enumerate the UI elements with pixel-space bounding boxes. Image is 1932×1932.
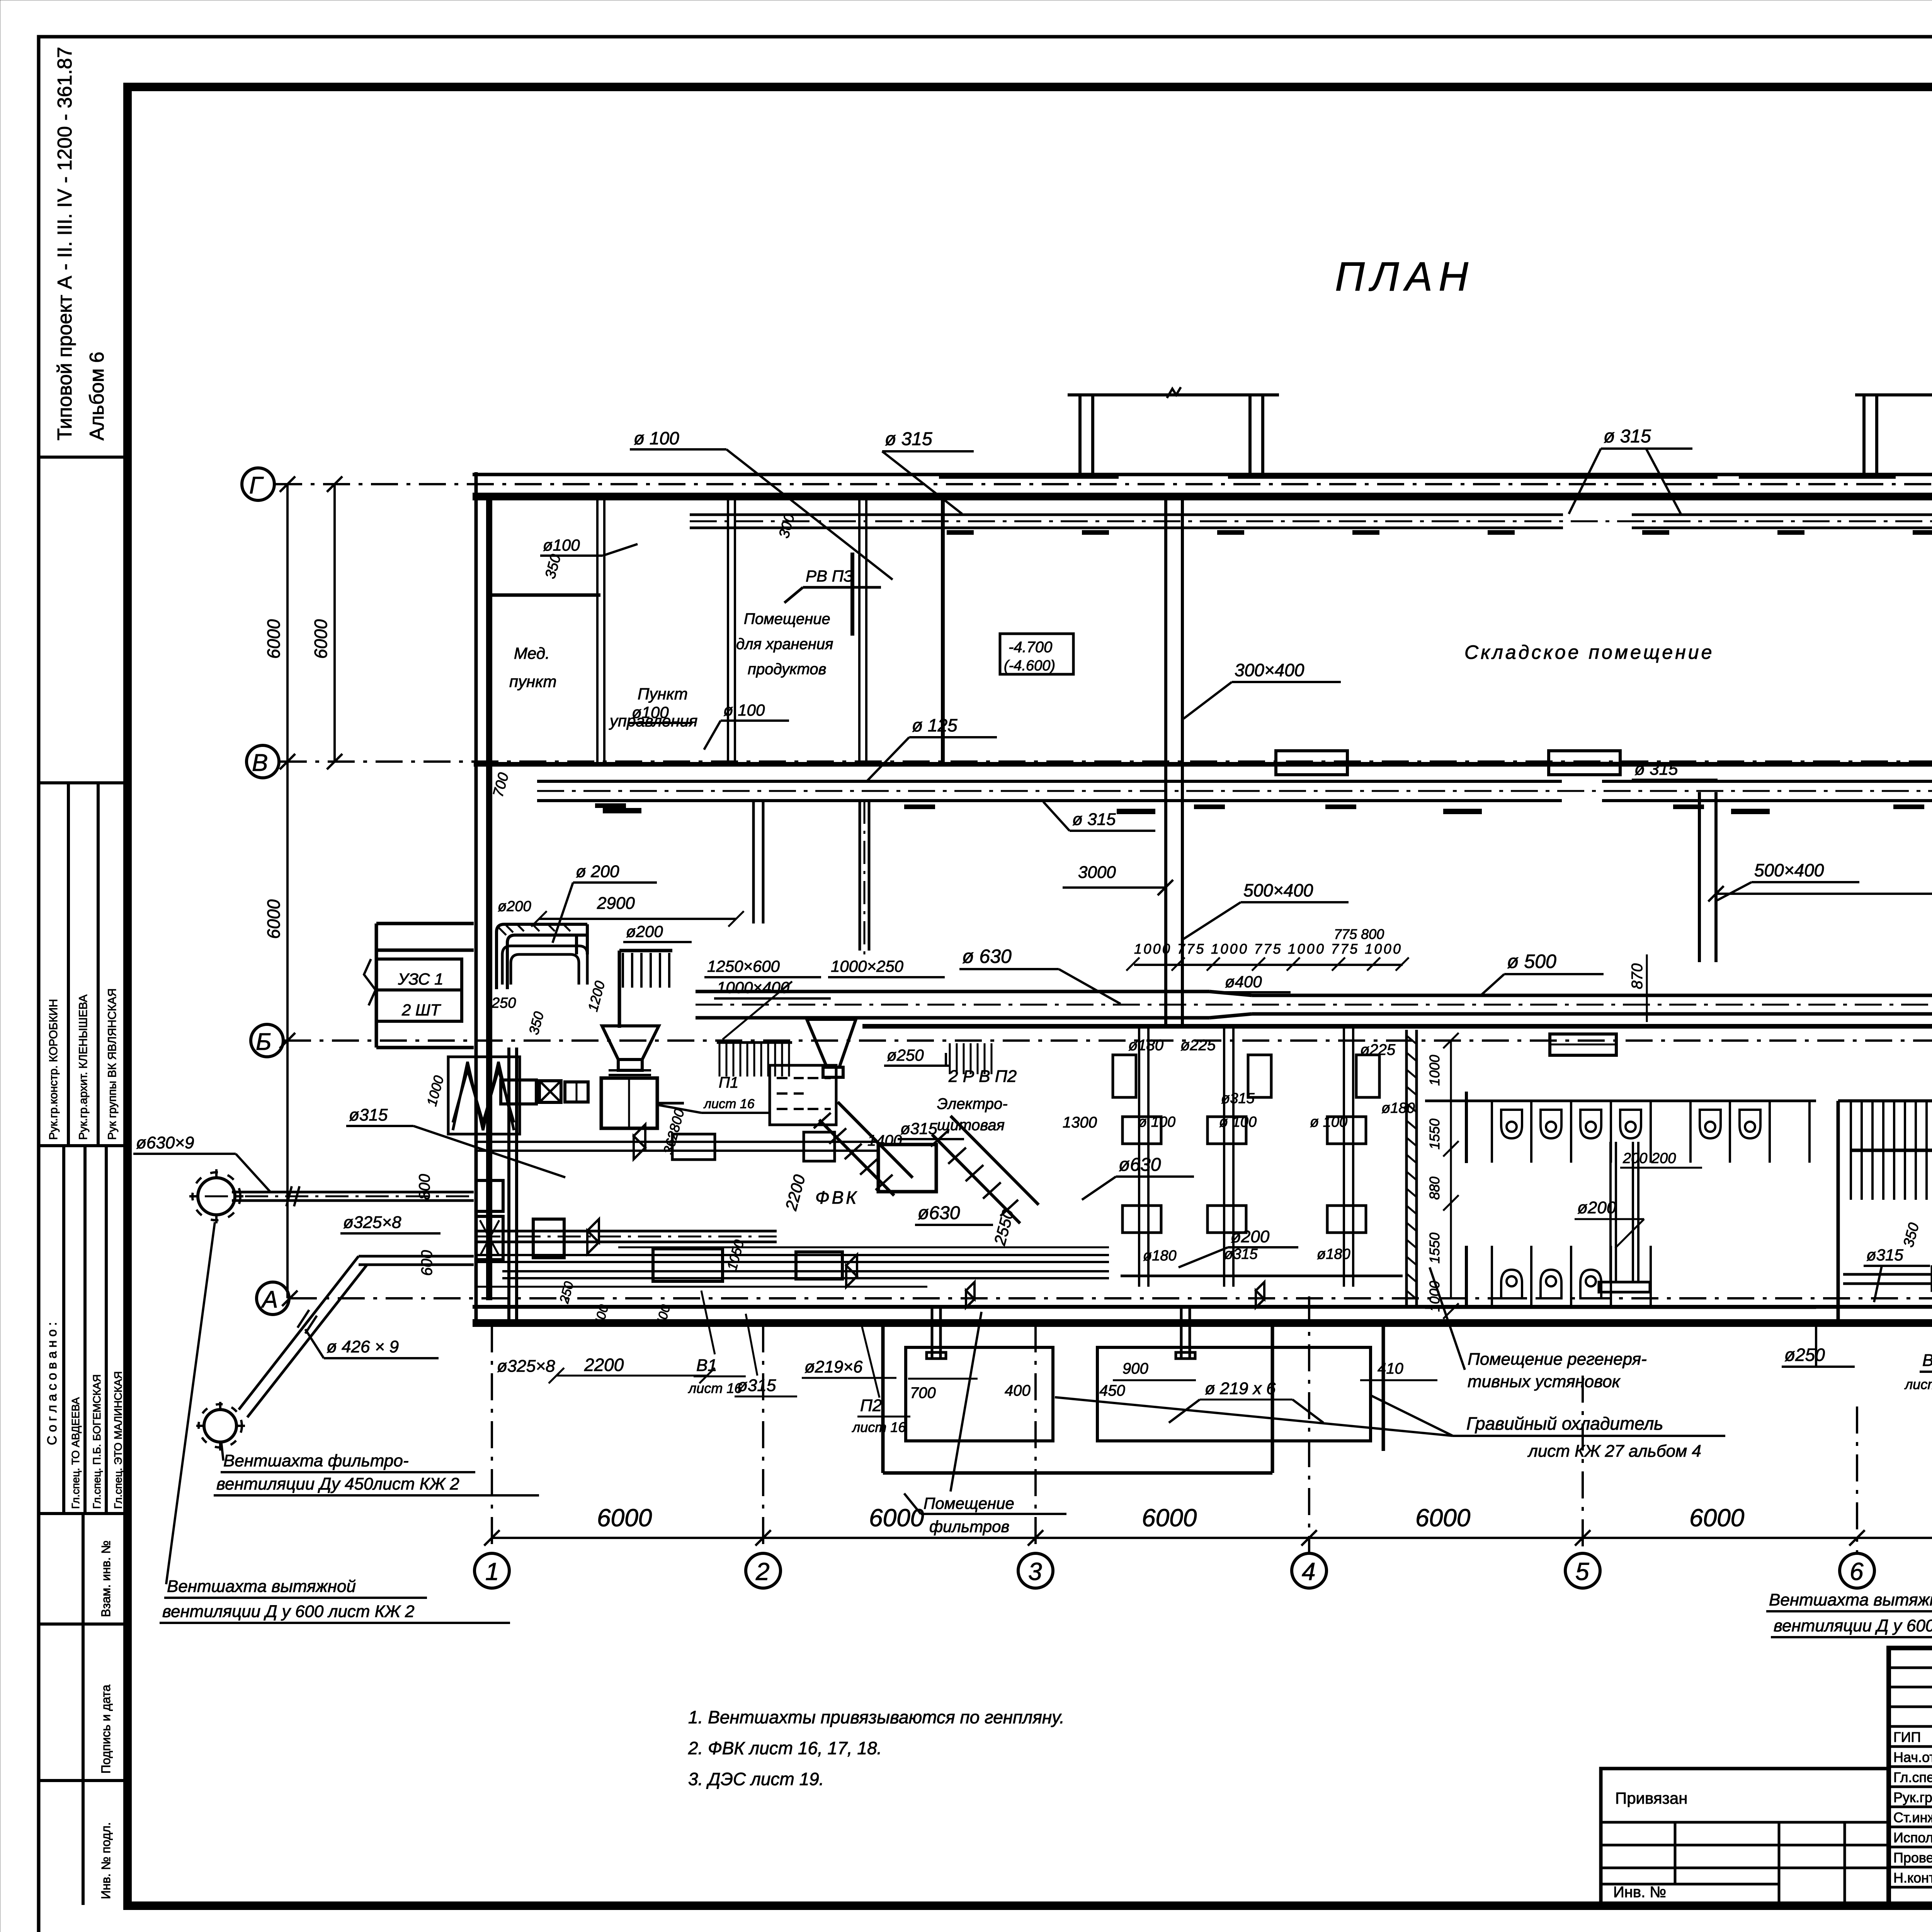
svg-text:775 800: 775 800	[1334, 926, 1384, 942]
svg-text:6000: 6000	[264, 899, 284, 939]
svg-text:Привязан: Привязан	[1615, 1789, 1687, 1807]
svg-text:350: 350	[1900, 1221, 1922, 1249]
svg-text:Вентшахта вытяжной: Вентшахта вытяжной	[167, 1577, 356, 1596]
svg-text:ø400: ø400	[1225, 973, 1262, 991]
svg-text:ø180: ø180	[1128, 1037, 1163, 1054]
svg-text:тивных устяновок: тивных устяновок	[1468, 1372, 1621, 1391]
svg-text:500×400: 500×400	[1243, 880, 1313, 900]
svg-text:Г: Г	[249, 472, 264, 499]
svg-text:Провер.: Провер.	[1893, 1850, 1932, 1866]
svg-text:ФВК: ФВК	[815, 1187, 859, 1207]
svg-text:лист 16: лист 16	[688, 1380, 742, 1396]
svg-text:362800: 362800	[660, 1107, 687, 1156]
svg-text:350: 350	[526, 1010, 547, 1036]
svg-text:ø180: ø180	[1381, 1100, 1415, 1116]
svg-text:ø 315: ø 315	[885, 429, 932, 449]
svg-text:6000: 6000	[1689, 1504, 1745, 1532]
svg-text:1300: 1300	[1063, 1114, 1097, 1131]
svg-text:лист 16: лист 16	[852, 1419, 906, 1435]
svg-text:ø100: ø100	[632, 703, 669, 721]
svg-text:ø325×8: ø325×8	[343, 1213, 401, 1232]
svg-text:2200: 2200	[782, 1172, 809, 1213]
svg-text:В: В	[252, 750, 268, 776]
svg-text:лист 19: лист 19	[1904, 1376, 1932, 1392]
svg-text:250: 250	[557, 1280, 577, 1305]
svg-text:ø 426 × 9: ø 426 × 9	[327, 1337, 399, 1356]
svg-text:Инв. № подл.: Инв. № подл.	[99, 1822, 113, 1899]
svg-text:2200: 2200	[584, 1355, 624, 1375]
svg-text:Рук.гр.констр. КОРОБКИН: Рук.гр.констр. КОРОБКИН	[47, 999, 60, 1140]
svg-text:П1: П1	[719, 1074, 738, 1091]
svg-text:Нач.отд.: Нач.отд.	[1893, 1749, 1932, 1765]
svg-text:Вентшахта вытяжной: Вентшахта вытяжной	[1769, 1590, 1932, 1609]
svg-text:ø200: ø200	[626, 922, 663, 940]
svg-text:1550: 1550	[1427, 1233, 1442, 1264]
svg-text:ø 315: ø 315	[1634, 760, 1678, 779]
svg-text:лист КЖ 27 альбом 4: лист КЖ 27 альбом 4	[1527, 1442, 1701, 1461]
svg-text:ø 219 x 6: ø 219 x 6	[1205, 1379, 1276, 1398]
svg-text:Гл.спец. ЭТО МАЛИНСКАЯ: Гл.спец. ЭТО МАЛИНСКАЯ	[112, 1371, 124, 1509]
svg-text:410: 410	[1378, 1360, 1403, 1377]
svg-text:300: 300	[776, 512, 798, 540]
svg-text:3000: 3000	[1078, 863, 1116, 882]
svg-text:Рук группы ВК ЯВЛЯНСКАЯ: Рук группы ВК ЯВЛЯНСКАЯ	[106, 988, 119, 1140]
svg-text:ø200: ø200	[498, 898, 531, 915]
svg-text:6000: 6000	[1142, 1504, 1197, 1532]
svg-text:Гл.спец. П.Б. БОГЕМСКАЯ: Гл.спец. П.Б. БОГЕМСКАЯ	[91, 1374, 103, 1509]
svg-text:2: 2	[755, 1558, 770, 1585]
svg-text:500×400: 500×400	[1754, 860, 1824, 880]
svg-text:П2: П2	[860, 1396, 882, 1415]
svg-text:Типовой проект А - II. III: Типовой проект А - II. III. IV - 1200 - …	[54, 47, 76, 440]
svg-text:Складское помещение: Складское помещение	[1464, 641, 1714, 663]
svg-text:ø315: ø315	[349, 1105, 388, 1124]
svg-text:Альбом 6: Альбом 6	[86, 352, 108, 440]
svg-text:ø630×9: ø630×9	[136, 1133, 194, 1152]
svg-text:Исполн.: Исполн.	[1893, 1830, 1932, 1845]
svg-text:Вентшахта фильтро-: Вентшахта фильтро-	[223, 1451, 408, 1470]
svg-text:ø200: ø200	[1231, 1227, 1270, 1246]
svg-text:ø315: ø315	[1866, 1246, 1903, 1264]
svg-text:вентиляции Д у 600 лист КЖ 2: вентиляции Д у 600 лист КЖ 2	[162, 1602, 415, 1621]
svg-text:ø 125: ø 125	[912, 715, 957, 735]
svg-text:6000: 6000	[597, 1504, 652, 1532]
svg-text:УЗС 1: УЗС 1	[398, 970, 444, 988]
svg-text:6000: 6000	[311, 619, 331, 659]
svg-text:ø180: ø180	[1317, 1246, 1350, 1262]
svg-text:С о г л а с о в а н о :: С о г л а с о в а н о :	[45, 1322, 60, 1445]
svg-text:Взам. инв. №: Взам. инв. №	[99, 1541, 113, 1617]
svg-text:Рук.гр.архит. КЛЕНЫШЕВА: Рук.гр.архит. КЛЕНЫШЕВА	[77, 995, 90, 1140]
svg-text:ø100: ø100	[543, 536, 580, 554]
svg-text:250: 250	[491, 995, 516, 1011]
svg-text:Н.контр.: Н.контр.	[1893, 1870, 1932, 1886]
svg-text:вентиляции Ду 450лист КЖ 2: вентиляции Ду 450лист КЖ 2	[216, 1475, 459, 1493]
svg-text:6000: 6000	[264, 619, 284, 659]
svg-text:ø225: ø225	[1180, 1037, 1216, 1054]
svg-text:Инв. №: Инв. №	[1613, 1884, 1666, 1901]
svg-text:ø 500: ø 500	[1507, 951, 1556, 972]
svg-text:-4.700: -4.700	[1009, 639, 1052, 656]
svg-text:ø200: ø200	[1577, 1198, 1616, 1217]
svg-text:продуктов: продуктов	[748, 661, 827, 678]
svg-text:1000: 1000	[423, 1074, 447, 1108]
svg-text:1. Вентшахты привязываютс: 1. Вентшахты привязываются по генпляну.	[688, 1707, 1065, 1727]
svg-text:1250×600: 1250×600	[707, 957, 780, 975]
svg-text:ø219×6: ø219×6	[804, 1357, 863, 1376]
svg-text:ПЛАН: ПЛАН	[1335, 254, 1475, 299]
svg-text:5: 5	[1575, 1558, 1589, 1585]
svg-text:Помещение регенеря-: Помещение регенеря-	[1468, 1350, 1647, 1369]
svg-text:ø315: ø315	[1224, 1246, 1258, 1262]
svg-text:В2: В2	[1922, 1351, 1932, 1370]
svg-text:880: 880	[1427, 1177, 1442, 1200]
svg-text:(-4.600): (-4.600)	[1004, 658, 1055, 674]
svg-text:450: 450	[1099, 1382, 1125, 1399]
svg-text:2 Р В П2: 2 Р В П2	[948, 1067, 1017, 1086]
svg-text:300×400: 300×400	[1235, 660, 1304, 680]
svg-text:ø 200: ø 200	[576, 862, 619, 881]
svg-text:ø315: ø315	[900, 1119, 937, 1138]
svg-text:2550: 2550	[990, 1207, 1017, 1247]
svg-text:Рук.гр: Рук.гр	[1893, 1789, 1932, 1805]
svg-text:600: 600	[418, 1250, 435, 1276]
svg-text:870: 870	[1629, 963, 1646, 989]
svg-text:1400: 1400	[867, 1132, 902, 1149]
svg-text:Помещение: Помещение	[923, 1494, 1014, 1512]
svg-text:ø630: ø630	[918, 1203, 960, 1223]
svg-text:900: 900	[1122, 1360, 1148, 1377]
svg-text:200 200: 200 200	[1622, 1150, 1676, 1167]
svg-text:для хранения: для хранения	[736, 636, 833, 653]
svg-text:ø 315: ø 315	[1072, 810, 1116, 829]
svg-text:Подпись и дата: Подпись и дата	[99, 1685, 113, 1774]
svg-text:щитовая: щитовая	[937, 1117, 1005, 1134]
svg-text:2900: 2900	[597, 894, 635, 913]
svg-text:Электро-: Электро-	[937, 1095, 1008, 1112]
svg-text:Пункт: Пункт	[638, 685, 688, 703]
svg-text:пункт: пункт	[509, 672, 557, 690]
svg-text:1: 1	[485, 1558, 499, 1585]
svg-text:ø250: ø250	[887, 1046, 924, 1064]
svg-text:1000 775 1000 775 1000 77: 1000 775 1000 775 1000 775 1000	[1134, 941, 1401, 957]
svg-text:Гравийный охладитель: Гравийный охладитель	[1466, 1413, 1663, 1434]
svg-text:Мед.: Мед.	[514, 644, 550, 662]
svg-text:350: 350	[542, 553, 564, 580]
svg-text:В1: В1	[696, 1356, 717, 1375]
svg-text:ГИП: ГИП	[1893, 1729, 1921, 1745]
svg-text:Ст.инж.: Ст.инж.	[1893, 1810, 1932, 1825]
svg-text:1550: 1550	[1427, 1119, 1442, 1150]
svg-text:ø 315: ø 315	[1604, 426, 1651, 447]
svg-text:ø250: ø250	[1784, 1345, 1825, 1365]
svg-text:ø 100: ø 100	[723, 701, 765, 719]
svg-text:4: 4	[1302, 1558, 1316, 1585]
svg-text:Помещение: Помещение	[744, 611, 830, 628]
svg-text:вентиляции Д у 600 листКЖ 2: вентиляции Д у 600 листКЖ 2	[1774, 1616, 1932, 1635]
svg-text:400: 400	[1005, 1382, 1031, 1399]
svg-text:Гл.спец. ТО АВДЕЕВА: Гл.спец. ТО АВДЕЕВА	[70, 1397, 82, 1509]
svg-text:ø 100: ø 100	[634, 428, 679, 448]
svg-text:6000: 6000	[1415, 1504, 1471, 1532]
svg-text:Гл.спец.: Гл.спец.	[1893, 1769, 1932, 1785]
svg-text:700: 700	[910, 1384, 936, 1401]
svg-text:1000: 1000	[1427, 1055, 1442, 1086]
svg-text:РВ ПЗ: РВ ПЗ	[806, 567, 854, 585]
svg-text:ø 630: ø 630	[962, 946, 1012, 967]
svg-text:3. ДЭС лист 19.: 3. ДЭС лист 19.	[688, 1769, 824, 1789]
svg-text:700: 700	[490, 771, 512, 799]
svg-text:2. ФВК лист 16, 17, 18: 2. ФВК лист 16, 17, 18.	[688, 1738, 882, 1758]
svg-text:фильтров: фильтров	[929, 1517, 1009, 1536]
svg-text:А: А	[260, 1286, 278, 1313]
svg-text:2 ШТ: 2 ШТ	[401, 1001, 442, 1019]
svg-text:ø325×8: ø325×8	[497, 1357, 555, 1376]
svg-text:3: 3	[1028, 1558, 1042, 1585]
svg-text:1000×250: 1000×250	[831, 957, 904, 975]
svg-text:ø315: ø315	[737, 1376, 776, 1395]
svg-text:лист 16: лист 16	[703, 1097, 755, 1111]
svg-text:Б: Б	[256, 1029, 271, 1055]
svg-text:6: 6	[1850, 1558, 1864, 1585]
